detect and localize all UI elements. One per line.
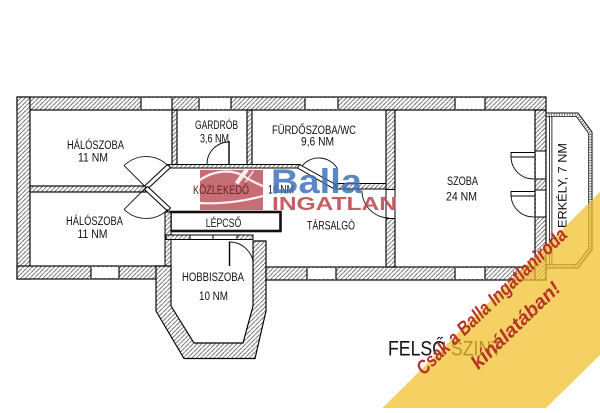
svg-text:HÁLÓSZOBA: HÁLÓSZOBA <box>66 213 124 228</box>
svg-text:INGATLAN: INGATLAN <box>272 194 397 214</box>
svg-text:10 NM: 10 NM <box>199 289 228 303</box>
svg-text:SZOBA: SZOBA <box>447 174 479 188</box>
svg-text:11 NM: 11 NM <box>78 227 108 241</box>
svg-text:11 NM: 11 NM <box>78 151 108 165</box>
svg-text:24 NM: 24 NM <box>446 190 477 204</box>
svg-text:HOBBISZOBA: HOBBISZOBA <box>182 270 245 284</box>
svg-text:9,6 NM: 9,6 NM <box>301 135 334 149</box>
svg-text:LÉPCSŐ: LÉPCSŐ <box>206 215 242 230</box>
svg-text:GARDRÓB: GARDRÓB <box>195 117 238 132</box>
svg-text:3,6 NM: 3,6 NM <box>200 132 229 146</box>
svg-text:KÖZLEKEDŐ: KÖZLEKEDŐ <box>193 182 249 197</box>
svg-text:ERKÉLY, 7 NM: ERKÉLY, 7 NM <box>557 143 570 228</box>
svg-text:TÁRSALGÓ: TÁRSALGÓ <box>307 218 355 233</box>
